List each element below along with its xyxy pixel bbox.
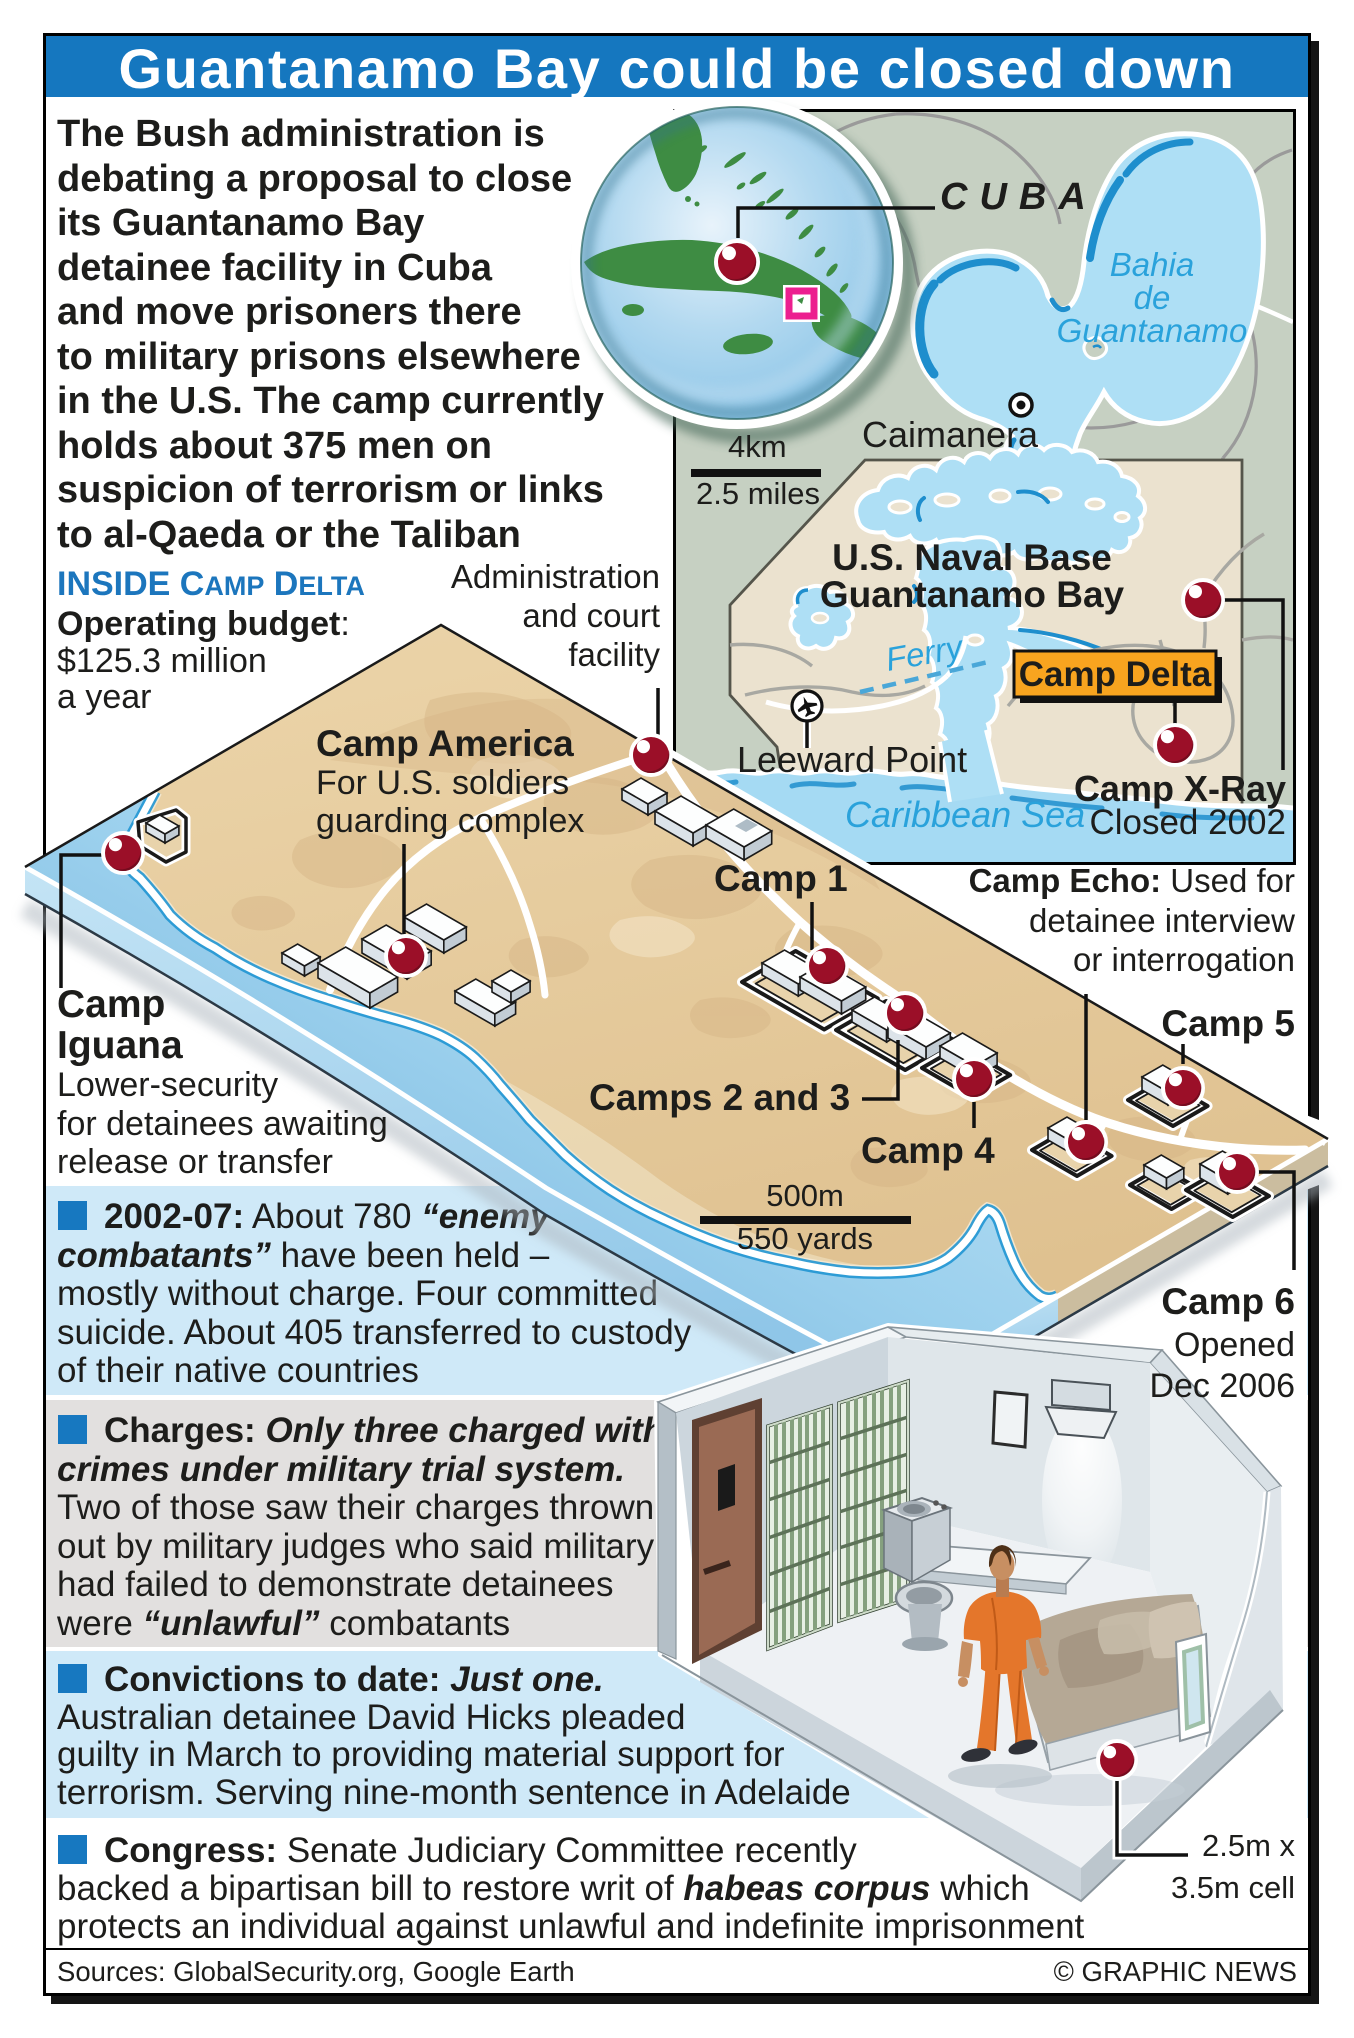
- svg-text:Guantanamo: Guantanamo: [1057, 312, 1248, 349]
- svg-text:4km: 4km: [728, 429, 787, 464]
- svg-text:550 yards: 550 yards: [737, 1221, 873, 1256]
- svg-text:Caribbean Sea: Caribbean Sea: [845, 794, 1085, 835]
- svg-text:Caimanera: Caimanera: [862, 414, 1039, 455]
- svg-text:and court: and court: [522, 597, 660, 634]
- svg-text:Bahia: Bahia: [1110, 246, 1194, 283]
- svg-text:Camps 2 and 3: Camps 2 and 3: [589, 1077, 850, 1118]
- svg-text:Leeward Point: Leeward Point: [737, 739, 967, 780]
- svg-text:2.5 miles: 2.5 miles: [696, 476, 820, 511]
- svg-text:facility: facility: [568, 636, 660, 673]
- svg-text:Dec 2006: Dec 2006: [1149, 1367, 1295, 1405]
- svg-text:Opened: Opened: [1174, 1326, 1295, 1364]
- svg-text:Iguana: Iguana: [57, 1024, 183, 1067]
- svg-text:Camp Echo: Used for: Camp Echo: Used for: [969, 862, 1295, 899]
- svg-text:500m: 500m: [766, 1178, 844, 1213]
- svg-text:Camp: Camp: [57, 983, 165, 1026]
- svg-text:Camp 6: Camp 6: [1161, 1281, 1295, 1322]
- svg-text:For U.S. soldiers: For U.S. soldiers: [316, 764, 569, 802]
- svg-text:detainee interview: detainee interview: [1029, 902, 1295, 939]
- svg-text:guarding complex: guarding complex: [316, 802, 584, 840]
- svg-text:CUBA: CUBA: [940, 176, 1098, 218]
- svg-text:release or transfer: release or transfer: [57, 1143, 333, 1181]
- svg-text:Lower-security: Lower-security: [57, 1066, 278, 1104]
- svg-text:U.S. Naval Base: U.S. Naval Base: [832, 537, 1112, 578]
- svg-text:Camp Delta: Camp Delta: [1019, 655, 1212, 694]
- svg-text:2.5m x: 2.5m x: [1202, 1828, 1296, 1863]
- svg-text:Guantanamo Bay: Guantanamo Bay: [820, 574, 1125, 615]
- svg-text:Camp 5: Camp 5: [1161, 1003, 1295, 1044]
- svg-text:3.5m cell: 3.5m cell: [1171, 1870, 1295, 1905]
- svg-text:Camp 4: Camp 4: [861, 1130, 995, 1171]
- svg-text:de: de: [1134, 279, 1171, 316]
- svg-text:Camp 1: Camp 1: [714, 858, 848, 899]
- svg-text:or interrogation: or interrogation: [1073, 941, 1295, 978]
- svg-text:Closed 2002: Closed 2002: [1089, 803, 1286, 842]
- svg-text:Camp America: Camp America: [316, 723, 574, 764]
- svg-text:for detainees awaiting: for detainees awaiting: [57, 1105, 388, 1143]
- svg-text:Administration: Administration: [451, 558, 660, 595]
